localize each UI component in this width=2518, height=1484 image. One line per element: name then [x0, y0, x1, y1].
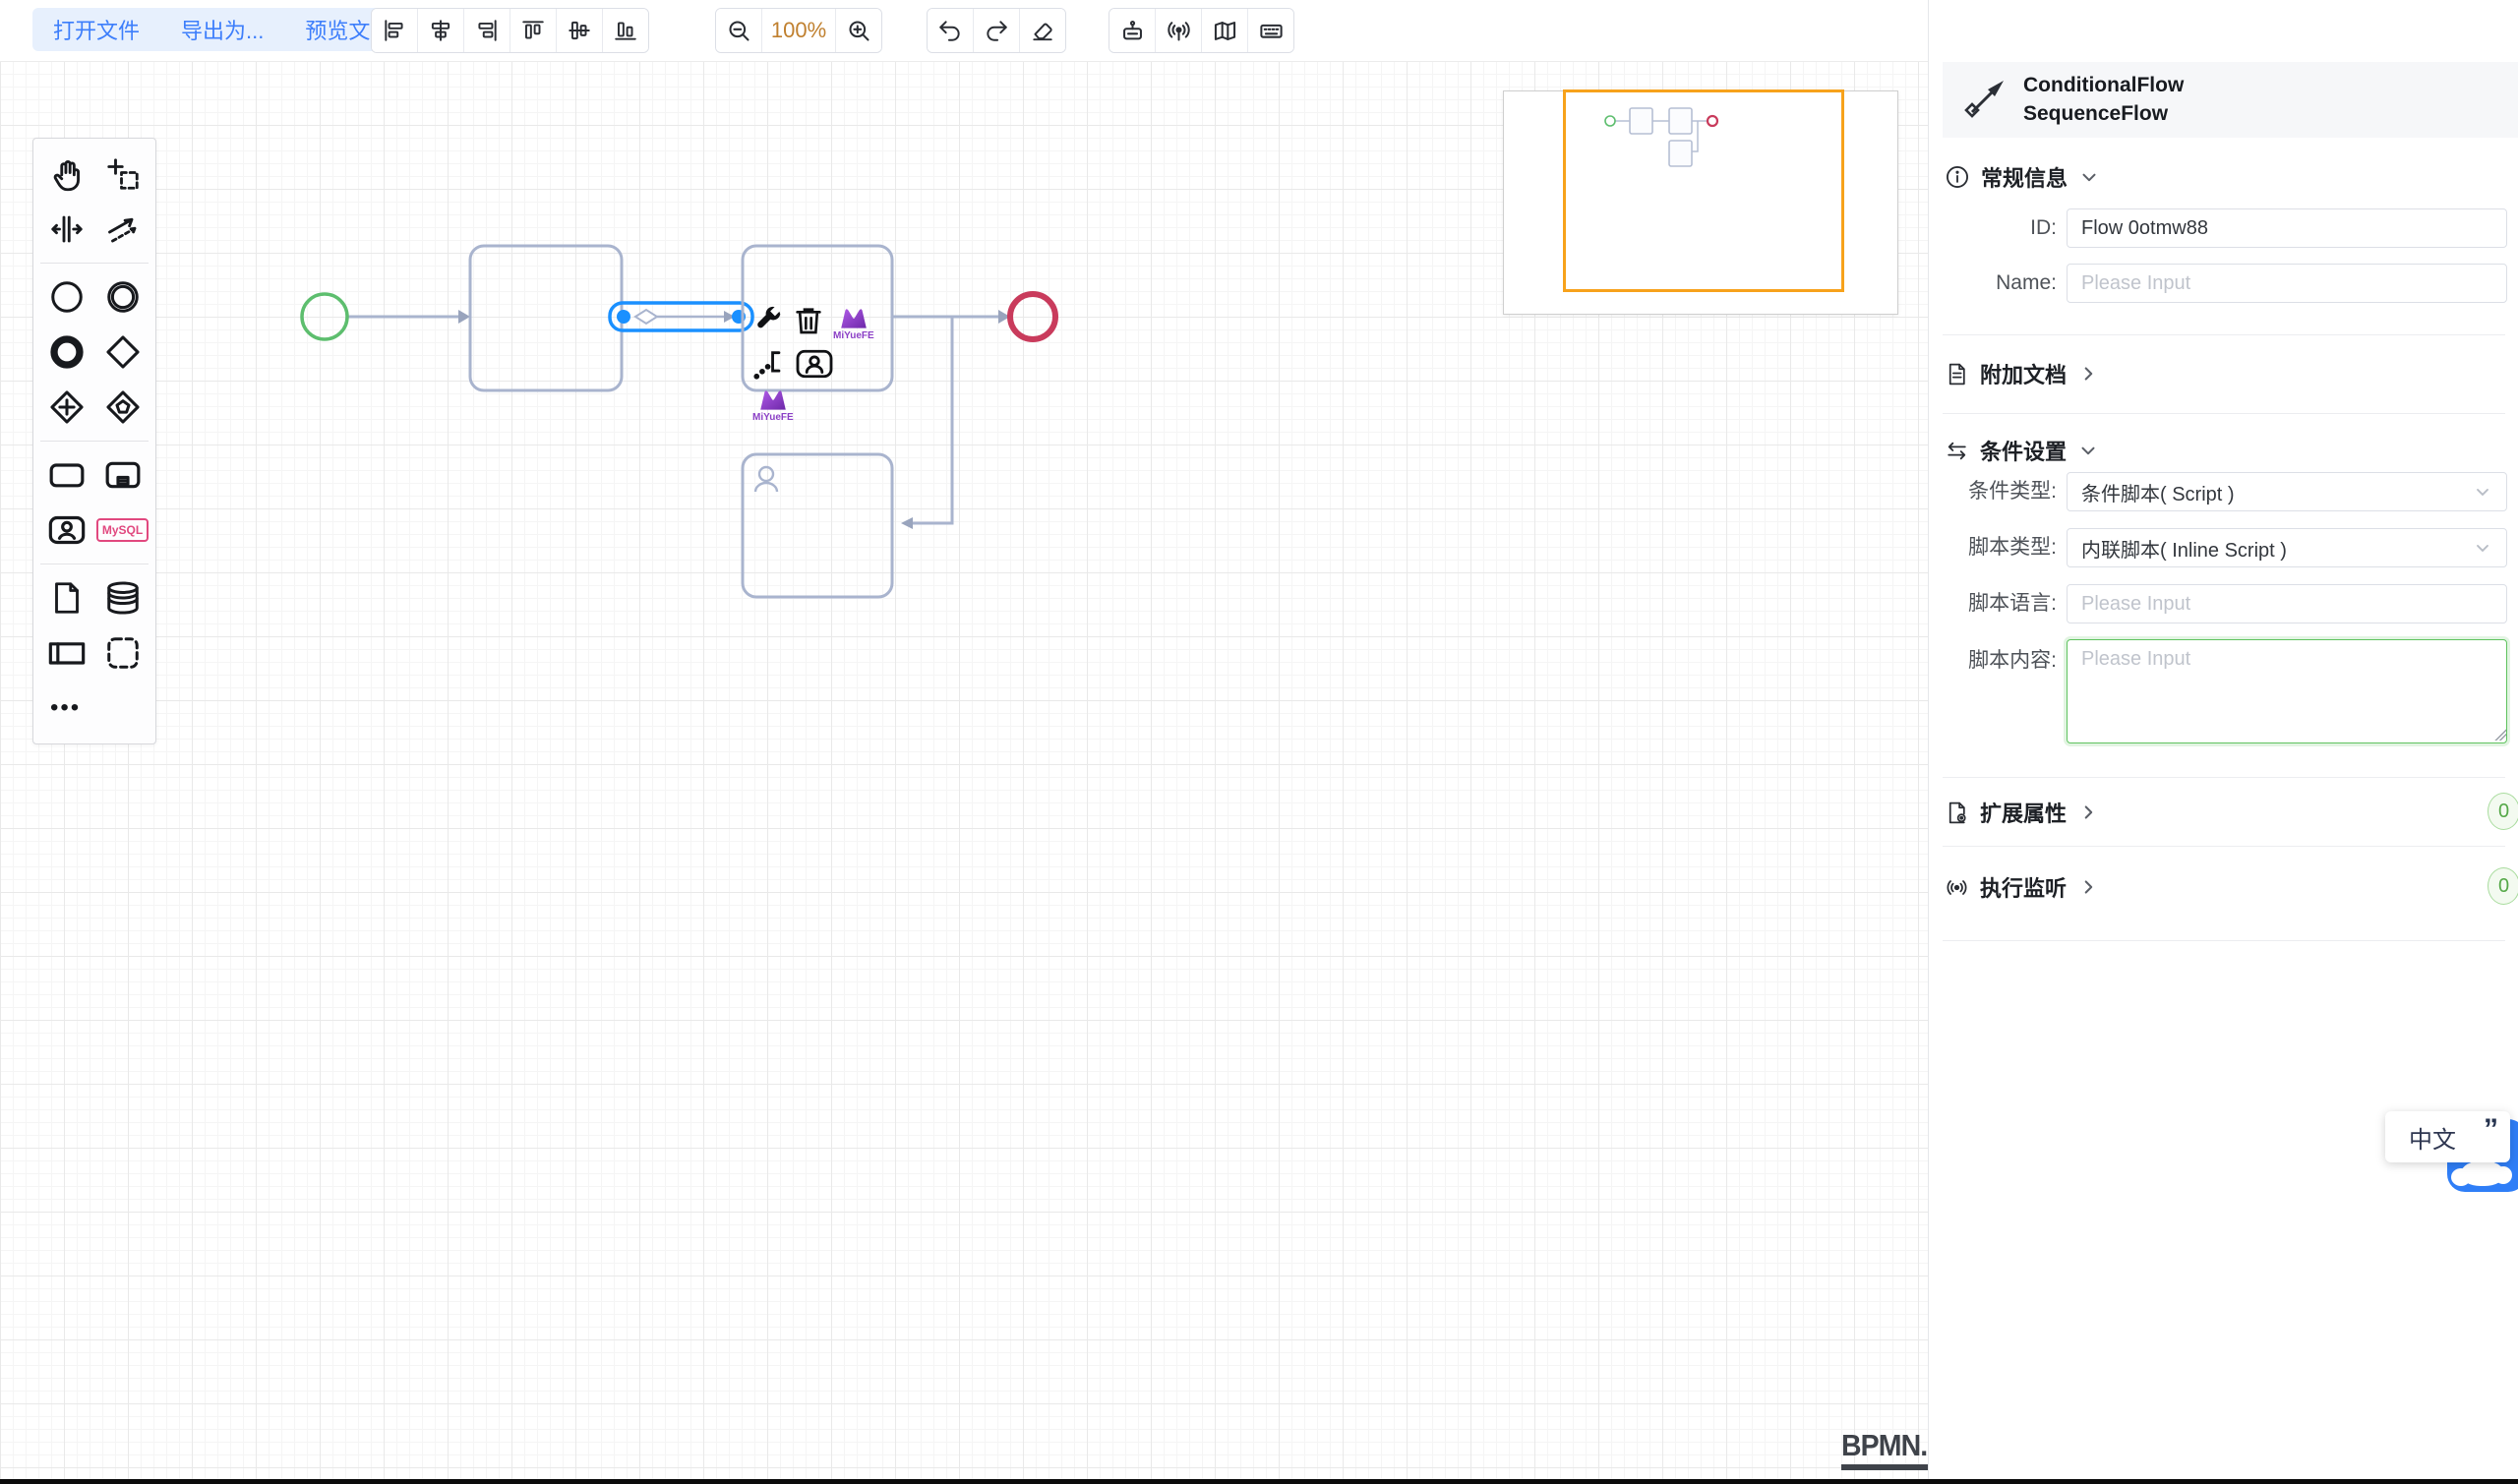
section-extension-properties[interactable]: 扩展属性 — [1945, 793, 2099, 832]
miyuefe-logo-icon — [757, 386, 789, 412]
condition-type-label: 条件类型: — [1929, 472, 2057, 511]
end-event-shape[interactable] — [1010, 294, 1055, 339]
chevron-down-icon — [2473, 538, 2492, 558]
palette-global-connect-tool[interactable] — [94, 202, 150, 257]
palette-separator — [40, 263, 149, 264]
intermediate-event-icon — [104, 278, 142, 316]
token-simulation-button[interactable] — [1109, 9, 1156, 52]
condition-type-value: 条件脚本( Script ) — [2081, 478, 2235, 506]
name-label: Name: — [1929, 264, 2057, 303]
keyboard-shortcuts-button[interactable] — [1248, 9, 1293, 52]
script-body-textarea[interactable] — [2067, 639, 2507, 743]
section-general-info[interactable]: 常规信息 — [1945, 157, 2100, 197]
open-file-button[interactable]: 打开文件 — [32, 8, 160, 51]
context-pad-text-annotation[interactable] — [752, 347, 786, 381]
context-pad-miyuefe-2[interactable]: MiYueFE — [752, 386, 794, 423]
complex-gateway-icon — [104, 388, 142, 426]
sequence-flow-3[interactable] — [901, 317, 952, 529]
align-top-icon — [520, 18, 546, 43]
zoom-button-group: 100% — [715, 8, 882, 53]
redo-button[interactable] — [974, 9, 1020, 52]
minimap-toggle-button[interactable] — [1202, 9, 1248, 52]
zoom-out-button[interactable] — [716, 9, 762, 52]
element-type-header: ConditionalFlow SequenceFlow — [1943, 62, 2518, 138]
palette-separator — [40, 564, 149, 564]
flow-endpoint-start[interactable] — [617, 310, 630, 324]
miyuefe-caption: MiYueFE — [833, 331, 874, 341]
palette-data-object[interactable] — [38, 570, 94, 625]
align-button-group — [371, 8, 649, 53]
sequence-flow-1[interactable] — [348, 310, 470, 324]
task-1-shape[interactable] — [470, 246, 622, 390]
conditional-diamond-marker — [635, 310, 657, 324]
mysql-task-icon: MySQL — [96, 518, 149, 542]
chevron-right-icon — [2077, 876, 2099, 898]
swap-arrows-icon — [1945, 439, 1969, 463]
broadcast-icon — [1945, 875, 1969, 900]
group-icon — [104, 634, 142, 672]
start-event-shape[interactable] — [302, 294, 347, 339]
zoom-in-button[interactable] — [836, 9, 881, 52]
quote-mark: ” — [2484, 1113, 2498, 1147]
bpmn-designer-app: 打开文件 导出为... 预览文件 — [0, 0, 2518, 1484]
script-body-label: 脚本内容: — [1929, 641, 2057, 681]
lasso-tool-icon — [105, 156, 141, 192]
palette-space-tool[interactable] — [38, 202, 94, 257]
miyuefe-caption: MiYueFE — [752, 413, 794, 423]
align-left-icon — [382, 18, 407, 43]
palette-more[interactable]: ••• — [38, 681, 94, 736]
chevron-right-icon — [2077, 801, 2099, 823]
palette-complex-gateway[interactable] — [94, 380, 150, 435]
hand-tool-icon — [49, 156, 85, 192]
context-pad-delete[interactable] — [793, 305, 824, 336]
element-type-line1: ConditionalFlow — [2023, 72, 2184, 99]
chevron-down-icon — [2077, 440, 2099, 461]
eraser-icon — [1030, 18, 1055, 43]
data-store-icon — [104, 579, 142, 617]
palette-exclusive-gateway[interactable] — [94, 325, 150, 380]
palette-group[interactable] — [94, 625, 150, 681]
zoom-level: 100% — [762, 9, 836, 52]
divider — [1943, 940, 2505, 941]
top-toolbar: 打开文件 导出为... 预览文件 — [0, 0, 1928, 62]
palette-participant[interactable] — [38, 625, 94, 681]
chevron-down-icon — [2078, 166, 2100, 188]
align-bottom-icon — [613, 18, 638, 43]
chevron-right-icon — [2077, 363, 2099, 385]
text-annotation-icon — [752, 347, 786, 381]
zoom-out-icon — [726, 18, 752, 44]
palette-separator — [40, 441, 149, 442]
document-icon — [1945, 362, 1969, 386]
script-language-input[interactable] — [2067, 584, 2507, 623]
section-listener-title: 执行监听 — [1980, 871, 2067, 903]
align-vertical-middle-icon — [567, 18, 592, 43]
palette-subprocess[interactable] — [94, 447, 150, 503]
chevron-down-icon — [2473, 482, 2492, 502]
condition-type-select[interactable]: 条件脚本( Script ) — [2067, 472, 2507, 511]
end-event-icon — [48, 333, 86, 371]
process-listener-icon — [1166, 18, 1192, 44]
divider — [1943, 334, 2505, 335]
zoom-in-icon — [846, 18, 872, 44]
section-general-title: 常规信息 — [1981, 161, 2068, 193]
user-task-icon — [47, 510, 87, 550]
align-horizontal-center-button[interactable] — [418, 9, 464, 52]
process-listener-button[interactable] — [1156, 9, 1202, 52]
conditional-flow-icon — [1960, 77, 2008, 124]
execution-listener-count-badge: 0 — [2488, 867, 2518, 905]
parallel-gateway-icon — [48, 388, 86, 426]
info-icon — [1945, 164, 1970, 190]
context-pad: MiYueFE MiYueFE — [752, 305, 874, 423]
extension-properties-count-badge: 0 — [2488, 793, 2518, 830]
redo-icon — [984, 18, 1009, 43]
palette-task[interactable] — [38, 447, 94, 503]
language-label: 中文 — [2409, 1120, 2456, 1155]
palette-mysql-task[interactable]: MySQL — [94, 503, 150, 558]
undo-button[interactable] — [928, 9, 974, 52]
element-palette: MySQL ••• — [32, 138, 156, 744]
divider — [1943, 846, 2505, 847]
data-object-icon — [49, 580, 85, 616]
clear-canvas-button[interactable] — [1020, 9, 1065, 52]
user-task-shape[interactable] — [743, 454, 892, 597]
palette-lasso-tool[interactable] — [94, 147, 150, 202]
minimap-viewport[interactable] — [1563, 89, 1844, 292]
align-bottom-button[interactable] — [603, 9, 648, 52]
script-type-value: 内联脚本( Inline Script ) — [2081, 534, 2287, 563]
keyboard-shortcuts-icon — [1258, 18, 1285, 44]
palette-user-task[interactable] — [38, 503, 94, 558]
wrench-icon — [752, 305, 784, 336]
language-tooltip-card: 中文 ” — [2385, 1111, 2510, 1162]
id-input[interactable] — [2067, 208, 2507, 248]
align-left-button[interactable] — [372, 9, 418, 52]
user-task-person-icon — [755, 467, 777, 492]
divider — [1943, 413, 2505, 414]
align-top-button[interactable] — [510, 9, 557, 52]
start-event-icon — [48, 278, 86, 316]
section-documentation-title: 附加文档 — [1980, 358, 2067, 389]
name-input[interactable] — [2067, 264, 2507, 303]
element-type-line2: SequenceFlow — [2023, 100, 2184, 128]
palette-parallel-gateway[interactable] — [38, 380, 94, 435]
divider — [1943, 777, 2505, 778]
palette-intermediate-event[interactable] — [94, 269, 150, 325]
palette-hand-tool[interactable] — [38, 147, 94, 202]
section-condition-title: 条件设置 — [1980, 435, 2067, 466]
simulation-robot-icon — [1119, 18, 1146, 44]
exclusive-gateway-icon — [104, 333, 142, 371]
more-icon: ••• — [38, 694, 94, 722]
palette-data-store[interactable] — [94, 570, 150, 625]
section-condition-settings[interactable]: 条件设置 — [1945, 431, 2099, 470]
script-language-label: 脚本语言: — [1929, 584, 2057, 623]
misc-button-group — [1109, 8, 1294, 53]
document-gear-icon — [1945, 801, 1969, 825]
properties-panel: ConditionalFlow SequenceFlow 常规信息 ID: Na… — [1928, 0, 2518, 1484]
selected-conditional-sequence-flow[interactable] — [610, 303, 752, 330]
minimap-panel[interactable] — [1503, 90, 1898, 315]
id-label: ID: — [1929, 208, 2057, 248]
participant-icon — [47, 633, 87, 673]
section-extension-title: 扩展属性 — [1980, 797, 2067, 828]
align-vertical-middle-button[interactable] — [557, 9, 603, 52]
export-as-button[interactable]: 导出为... — [160, 8, 284, 51]
script-type-label: 脚本类型: — [1929, 528, 2057, 567]
align-right-icon — [474, 18, 500, 43]
context-pad-wrench[interactable] — [752, 305, 784, 336]
minimap-toggle-icon — [1212, 18, 1238, 44]
context-pad-miyuefe[interactable]: MiYueFE — [833, 305, 874, 341]
palette-start-event[interactable] — [38, 269, 94, 325]
translate-widget-blob — [2461, 1160, 2504, 1186]
script-type-select[interactable]: 内联脚本( Inline Script ) — [2067, 528, 2507, 567]
task-icon — [47, 455, 87, 495]
undo-icon — [937, 18, 963, 43]
bpmn-io-logo-underline — [1841, 1464, 1928, 1470]
window-bottom-edge — [0, 1479, 2518, 1484]
align-right-button[interactable] — [464, 9, 510, 52]
subprocess-icon — [103, 455, 143, 495]
palette-end-event[interactable] — [38, 325, 94, 380]
align-horizontal-center-icon — [428, 18, 453, 43]
section-execution-listener[interactable]: 执行监听 — [1945, 867, 2099, 907]
context-pad-append-user-task[interactable] — [795, 347, 834, 381]
space-tool-icon — [49, 211, 85, 247]
trash-icon — [793, 305, 824, 336]
miyuefe-logo-icon — [838, 305, 869, 330]
history-button-group — [927, 8, 1066, 53]
section-documentation[interactable]: 附加文档 — [1945, 354, 2099, 393]
global-connect-icon — [105, 211, 141, 247]
append-user-task-icon — [795, 347, 834, 381]
file-button-group: 打开文件 导出为... 预览文件 — [32, 8, 412, 51]
